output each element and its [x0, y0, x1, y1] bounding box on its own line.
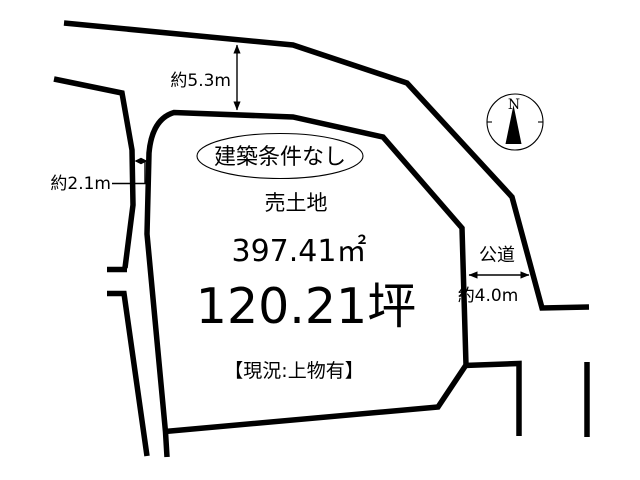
area-tsubo-label: 120.21坪	[196, 278, 416, 335]
badge-label: 建築条件なし	[214, 145, 346, 170]
listing-type-label: 売土地	[265, 191, 328, 215]
right-road-width-label: 約4.0m	[458, 286, 519, 306]
top-road-width-label: 約5.3m	[170, 71, 231, 91]
bottom-right-road-left-edge	[464, 364, 519, 437]
land-plot-diagram: N 約5.3m 約2.1m 建築条件なし 売土地 397.41㎡ 120.21坪…	[0, 0, 640, 480]
right-road-name-label: 公道	[479, 245, 515, 266]
left-road-width-leader	[112, 161, 145, 184]
plot-drawing-canvas: N 約5.3m 約2.1m 建築条件なし 売土地 397.41㎡ 120.21坪…	[0, 0, 640, 480]
compass: N	[487, 94, 543, 150]
current-status-label: 【現況:上物有】	[224, 360, 363, 382]
compass-north-label: N	[508, 97, 520, 113]
area-sqm-label: 397.41㎡	[232, 234, 367, 269]
left-road-width-label: 約2.1m	[50, 174, 111, 194]
left-road-outer-line-lower	[107, 294, 147, 457]
